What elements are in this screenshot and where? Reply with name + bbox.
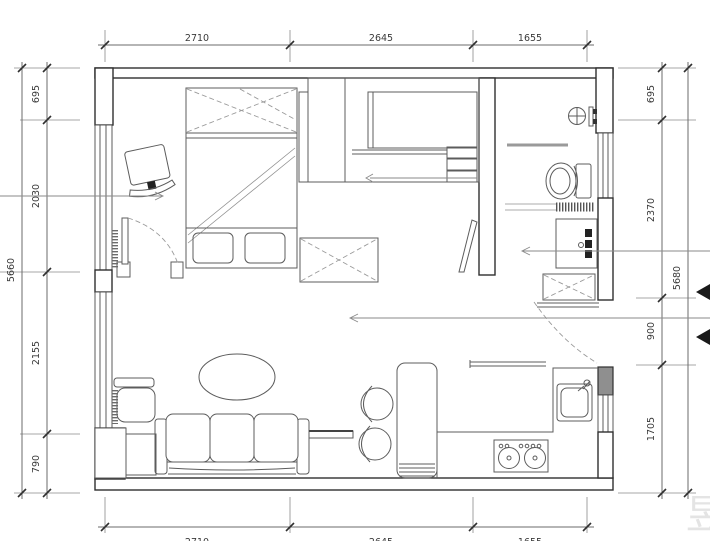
entry-direction-arrow-upper	[696, 284, 710, 300]
dimension-bottom: 2710 2645 1655	[98, 497, 594, 541]
dim-top-3: 1655	[518, 33, 542, 44]
wall-pier-bottom-left	[95, 428, 126, 478]
dining	[359, 363, 437, 478]
round-chair-lower	[359, 426, 391, 462]
side-table-right	[309, 431, 353, 438]
stove	[494, 440, 548, 472]
window-left-lower	[95, 292, 112, 428]
sofa	[155, 414, 309, 474]
ottoman-crossed-box	[300, 238, 378, 282]
floor-plan-drawing: 2710 2645 1655 2710 2645 1655	[0, 0, 710, 541]
dim-bottom-3: 1655	[518, 537, 542, 541]
window-right-lower	[598, 395, 613, 432]
round-chair-upper	[361, 386, 393, 422]
wall-right-column-bottom	[598, 432, 613, 478]
kitchen-sink	[557, 380, 592, 421]
sofa-arm-left	[155, 419, 167, 474]
dimension-top: 2710 2645 1655	[98, 30, 594, 62]
wall-right-mid	[598, 198, 613, 300]
washing-machine	[537, 274, 599, 307]
dim-bottom-1: 2710	[185, 537, 209, 541]
wall-right-column-top	[596, 68, 613, 133]
dim-left-4: 790	[31, 455, 42, 473]
living-leader-arrow	[350, 314, 710, 322]
entry-door-swing	[534, 302, 597, 363]
tv-monitor	[120, 143, 176, 199]
wall-left-column-mid	[95, 270, 112, 292]
towel-radiator	[505, 204, 595, 210]
bed	[186, 88, 297, 268]
shelf-3	[447, 171, 477, 182]
dim-left-1: 695	[31, 85, 42, 103]
pillow-right	[245, 233, 285, 263]
living-room	[114, 354, 353, 475]
bedroom	[0, 88, 308, 268]
dim-right-1: 695	[646, 85, 657, 103]
shower-head	[569, 107, 598, 126]
dimension-left: 695 2030 2155 790 5660	[0, 62, 80, 499]
dim-top-1: 2710	[185, 33, 209, 44]
dim-left-total: 5660	[6, 258, 17, 282]
dim-right-2: 2370	[646, 198, 657, 222]
armchair	[114, 378, 155, 422]
wall-right-pier	[598, 367, 613, 395]
entry-direction-arrow-lower	[696, 329, 710, 345]
leaning-board	[459, 220, 477, 272]
wall-bottom	[95, 478, 613, 490]
wall-bathroom-partition	[479, 78, 495, 275]
toilet	[546, 163, 591, 199]
bedroom-leader-arrow	[0, 192, 163, 200]
dim-right-3: 900	[646, 322, 657, 340]
dim-bottom-2: 2645	[369, 537, 393, 541]
sofa-cushion-2	[210, 414, 254, 462]
watermark: 昱	[686, 492, 710, 538]
coffee-table	[199, 354, 275, 400]
sofa-cushion-3	[254, 414, 298, 462]
kitchen	[437, 368, 598, 478]
window-right-upper	[598, 133, 613, 198]
dim-left-3: 2155	[31, 341, 42, 365]
window-left-upper	[95, 125, 112, 270]
wall-top	[95, 68, 613, 78]
vanity-sink-cabinet	[556, 219, 597, 268]
dim-top-2: 2645	[369, 33, 393, 44]
bed-side-panel	[299, 92, 308, 182]
dim-right-4: 1705	[646, 417, 657, 441]
dim-right-total: 5680	[672, 266, 683, 290]
dining-table	[397, 363, 437, 478]
shoe-shelf	[470, 360, 546, 368]
sofa-cushion-1	[166, 414, 210, 462]
shelf-2	[447, 159, 477, 170]
wardrobe-unit	[308, 78, 479, 182]
pillow-left	[193, 233, 233, 263]
shelf-1	[447, 147, 477, 158]
dimension-right: 695 2370 900 1705 5680	[618, 62, 696, 499]
side-cabinet-left	[126, 434, 156, 475]
bathroom-leader-arrow	[522, 247, 710, 255]
bedroom-door	[122, 218, 178, 264]
sofa-arm-right	[297, 419, 309, 474]
wall-left-column-top	[95, 68, 113, 125]
door-frame-right	[171, 262, 183, 278]
floor-plan-canvas: 2710 2645 1655 2710 2645 1655	[0, 0, 710, 541]
